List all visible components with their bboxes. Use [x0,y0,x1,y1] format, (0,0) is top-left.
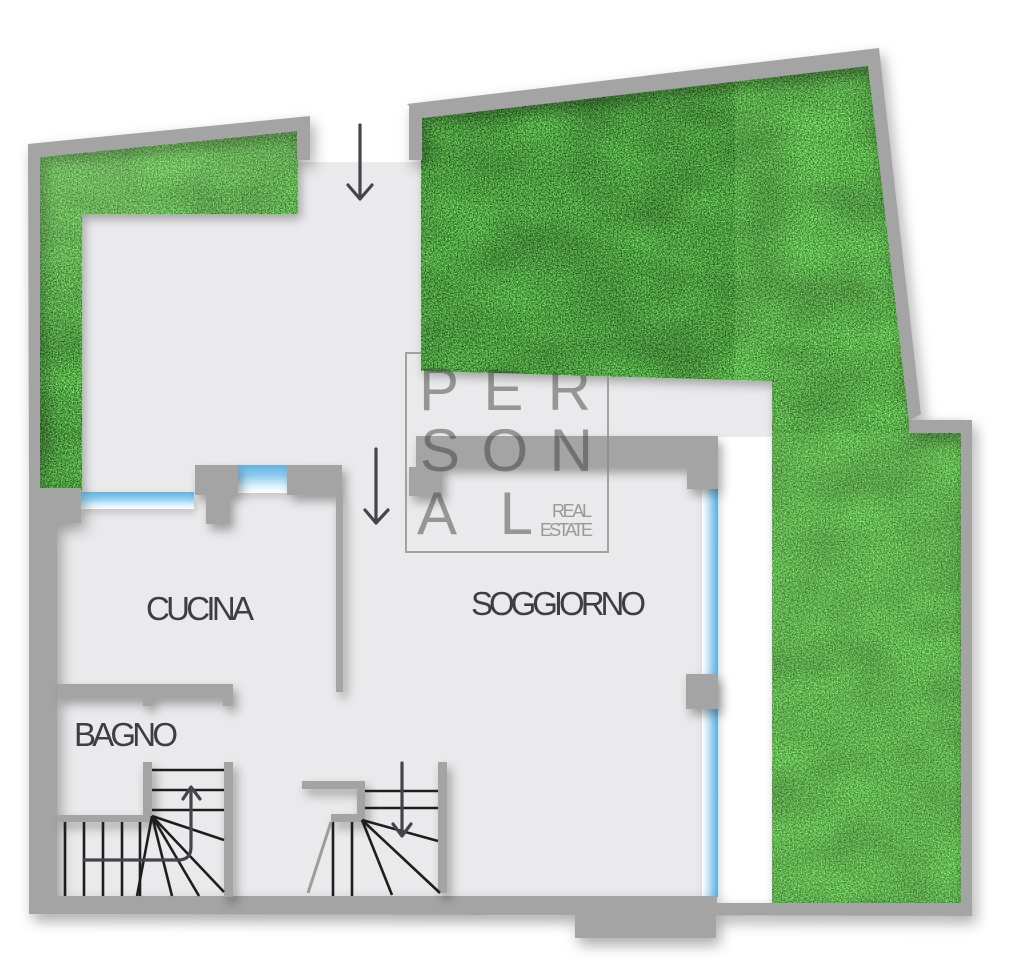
svg-text:BAGNO: BAGNO [74,716,178,753]
svg-text:REAL: REAL [552,501,592,521]
svg-text:SOGGIORNO: SOGGIORNO [471,585,646,622]
svg-text:SON: SON [420,417,593,484]
svg-text:CUCINA: CUCINA [146,590,254,627]
svg-text:ESTATE: ESTATE [540,520,593,540]
